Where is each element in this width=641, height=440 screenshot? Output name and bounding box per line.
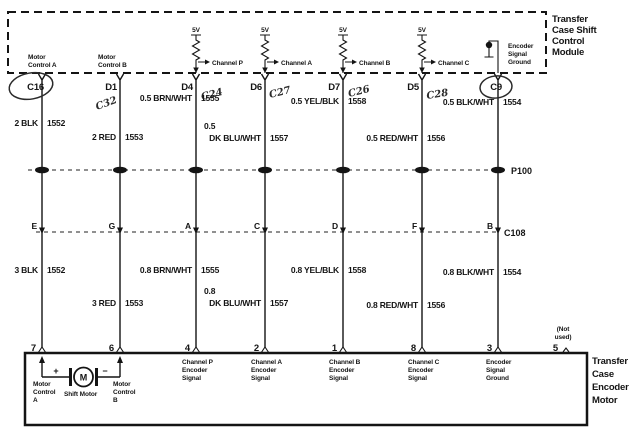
wire-color-label: 0.8 YEL/BLK	[291, 265, 340, 275]
c108-pin-letter: A	[185, 221, 191, 231]
encoder-signal-label: Signal	[329, 375, 348, 382]
motor-control-a-label: Motor	[33, 381, 51, 388]
motor-terminal-bar	[69, 368, 72, 386]
module-title-line: Module	[552, 47, 584, 58]
supply-voltage-label: 5V	[192, 27, 201, 34]
arrow-down-icon	[117, 228, 123, 235]
wire-color-label: 3 BLK	[14, 265, 39, 275]
wire-color-label: 0.5	[204, 121, 216, 131]
wire-color-label: 2 BLK	[14, 118, 39, 128]
wire-color-label: 0.5 YEL/BLK	[291, 96, 340, 106]
wire-circuit-number: 1553	[125, 132, 144, 142]
encoder-signal-label: Signal	[486, 367, 505, 374]
arrow-down-icon	[340, 228, 346, 235]
ground-icon	[485, 41, 499, 73]
wire-color-label: 0.8 BRN/WHT	[140, 265, 193, 275]
module-pin-label: Encoder	[508, 43, 534, 50]
plus-terminal-label: +	[53, 366, 58, 376]
handwritten-note: C27	[268, 85, 292, 101]
channel-label: Channel B	[359, 60, 391, 67]
encoder-signal-label: Signal	[182, 375, 201, 382]
schematic-canvas: Transfer Case Shift Control Module 5V 5V…	[0, 0, 641, 440]
motor-control-a-label: A	[33, 397, 38, 404]
wire-circuit-number: 1558	[348, 96, 367, 106]
wire-circuit-number: 1556	[427, 300, 446, 310]
not-used-label: (Not	[557, 326, 571, 333]
encoder-signal-label: Channel A	[251, 359, 282, 366]
wire-circuit-number: 1554	[503, 97, 522, 107]
module-title-line: Case Shift	[552, 25, 597, 36]
arrow-down-icon	[419, 228, 425, 235]
encoder-signal-label: Channel P	[182, 359, 214, 366]
wire-color-label: DK BLU/WHT	[209, 133, 262, 143]
connector-oval-icon	[336, 167, 350, 174]
wiring-diagram: Transfer Case Shift Control Module 5V 5V…	[0, 0, 641, 440]
shift-motor-label: Shift Motor	[64, 391, 98, 398]
wire-color-label: 0.8	[204, 286, 216, 296]
wire-circuit-number: 1554	[503, 267, 522, 277]
wire-circuit-number: 1557	[270, 133, 289, 143]
wire-circuit-number: 1558	[348, 265, 367, 275]
wire-color-label: 2 RED	[92, 132, 116, 142]
arrow-up-icon	[117, 356, 123, 363]
arrow-down-icon	[39, 228, 45, 235]
motor-symbol-letter: M	[80, 373, 88, 383]
arrow-right-icon	[352, 60, 357, 65]
encoder-signal-label: Encoder	[408, 367, 434, 374]
top-pin-name: C9	[490, 82, 502, 93]
wire-circuit-number: 1552	[47, 118, 66, 128]
arrow-right-icon	[431, 60, 436, 65]
wire-circuit-number: 1556	[427, 133, 446, 143]
supply-voltage-label: 5V	[418, 27, 427, 34]
c108-pin-letter: G	[109, 221, 116, 231]
resistor-icon	[260, 35, 274, 73]
connector-oval-icon	[258, 167, 272, 174]
c108-pin-letter: F	[412, 221, 417, 231]
supply-voltage-label: 5V	[261, 27, 270, 34]
wire-line	[419, 74, 426, 347]
top-pin-name: D4	[181, 82, 194, 93]
top-pin-name: D5	[407, 82, 420, 93]
motor-title-line: Motor	[592, 395, 618, 406]
motor-title-line: Encoder	[592, 382, 629, 393]
pin-caret-icon	[563, 348, 569, 352]
p100-label: P100	[511, 166, 532, 176]
c108-label: C108	[504, 228, 526, 238]
encoder-signal-label: Signal	[408, 375, 427, 382]
motor-terminal-bar	[95, 368, 98, 386]
encoder-signal-label: Encoder	[329, 367, 355, 374]
motor-control-a-label: Control	[33, 389, 56, 396]
top-pin-name: D7	[328, 82, 340, 93]
c108-pin-letter: C	[254, 221, 260, 231]
top-pin-name: D1	[105, 82, 118, 93]
c108-pin-letter: D	[332, 221, 338, 231]
wire-circuit-number: 1555	[201, 265, 220, 275]
wire-line	[117, 74, 124, 347]
minus-terminal-label: −	[102, 366, 107, 376]
module-pin-label: Motor	[28, 54, 46, 61]
p100-connector-ovals	[35, 167, 505, 174]
encoder-signal-label: Encoder	[486, 359, 512, 366]
resistor-icon	[338, 35, 352, 73]
channel-label: Channel C	[438, 60, 470, 67]
connector-oval-icon	[189, 167, 203, 174]
wire-line	[193, 74, 200, 347]
encoder-signal-label: Encoder	[251, 367, 277, 374]
arrow-right-icon	[274, 60, 279, 65]
motor-control-b-label: B	[113, 397, 118, 404]
arrow-down-icon	[495, 228, 501, 235]
wire-circuit-number: 1553	[125, 298, 144, 308]
encoder-signal-label: Encoder	[182, 367, 208, 374]
handwritten-note: C32	[94, 95, 118, 113]
wire-color-label: 0.5 BLK/WHT	[443, 97, 495, 107]
wire-line	[495, 74, 502, 347]
pullup-resistors	[191, 35, 436, 73]
module-title-line: Transfer	[552, 14, 588, 25]
resistor-icon	[417, 35, 431, 73]
wire-circuit-number: 1552	[47, 265, 66, 275]
resistor-icon	[191, 35, 205, 73]
arrow-right-icon	[205, 60, 210, 65]
module-pin-label: Ground	[508, 59, 531, 66]
motor-control-b-label: Motor	[113, 381, 131, 388]
connector-oval-icon	[35, 167, 49, 174]
motor-control-b-label: Control	[113, 389, 136, 396]
encoder-signal-label: Signal	[251, 375, 270, 382]
not-used-label: used)	[555, 334, 572, 341]
wire-color-label: 0.5 BRN/WHT	[140, 93, 193, 103]
connector-oval-icon	[113, 167, 127, 174]
module-pin-label: Control A	[28, 62, 57, 69]
ground-dot	[486, 42, 492, 48]
wire-color-label: 0.8 BLK/WHT	[443, 267, 495, 277]
arrow-down-icon	[262, 228, 268, 235]
module-pin-label: Control B	[98, 62, 127, 69]
wire-line	[39, 74, 46, 347]
wire-color-label: 0.5 RED/WHT	[366, 133, 419, 143]
channel-label: Channel P	[212, 60, 244, 67]
wire-color-label: DK BLU/WHT	[209, 298, 262, 308]
motor-title-line: Case	[592, 369, 614, 380]
motor-title-line: Transfer	[592, 356, 628, 367]
top-pin-name: C16	[27, 82, 44, 93]
wire-circuit-number: 1555	[201, 93, 220, 103]
encoder-signal-label: Channel C	[408, 359, 440, 366]
c108-pin-letter: E	[32, 221, 38, 231]
channel-label: Channel A	[281, 60, 312, 67]
wire-line	[340, 74, 347, 347]
wire-line	[262, 74, 269, 347]
c108-pin-letter: B	[487, 221, 493, 231]
wire-color-label: 3 RED	[92, 298, 116, 308]
supply-voltage-label: 5V	[339, 27, 348, 34]
top-pin-name: D6	[250, 82, 262, 93]
arrow-down-icon	[193, 228, 199, 235]
ground-stem	[485, 48, 494, 57]
module-pin-label: Motor	[98, 54, 116, 61]
connector-oval-icon	[491, 167, 505, 174]
encoder-signal-label: Channel B	[329, 359, 361, 366]
encoder-signal-label: Ground	[486, 375, 509, 382]
connector-oval-icon	[415, 167, 429, 174]
wire-color-label: 0.8 RED/WHT	[366, 300, 419, 310]
module-title-line: Control	[552, 36, 584, 47]
arrow-up-icon	[39, 356, 45, 363]
wire-circuit-number: 1557	[270, 298, 289, 308]
module-pin-label: Signal	[508, 51, 527, 58]
